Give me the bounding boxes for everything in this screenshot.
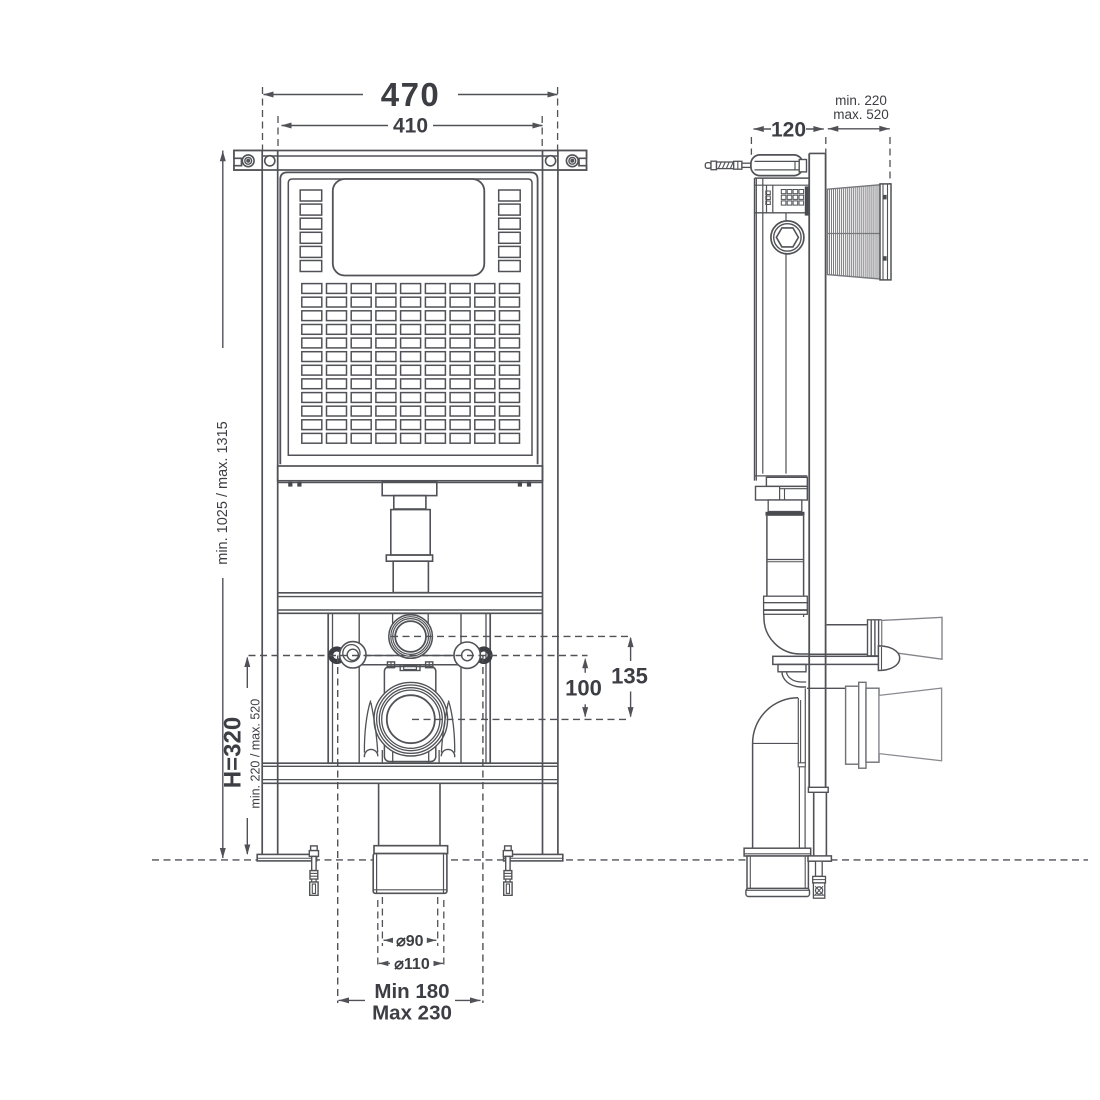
svg-text:410: 410 (393, 115, 428, 138)
svg-text:H=320: H=320 (220, 717, 247, 788)
svg-text:min. 220: min. 220 (835, 93, 887, 108)
svg-text:min. 1025 / max. 1315: min. 1025 / max. 1315 (215, 421, 231, 564)
svg-text:max. 520: max. 520 (833, 107, 889, 122)
svg-text:Max 230: Max 230 (372, 1002, 452, 1025)
svg-text:120: 120 (771, 119, 806, 142)
svg-text:min. 220 / max. 520: min. 220 / max. 520 (249, 699, 263, 809)
svg-text:470: 470 (381, 76, 441, 113)
svg-text:Min 180: Min 180 (374, 980, 449, 1003)
svg-text:100: 100 (565, 676, 602, 701)
svg-text:⌀90: ⌀90 (396, 933, 424, 950)
svg-text:135: 135 (611, 664, 648, 689)
svg-text:⌀110: ⌀110 (394, 956, 430, 973)
